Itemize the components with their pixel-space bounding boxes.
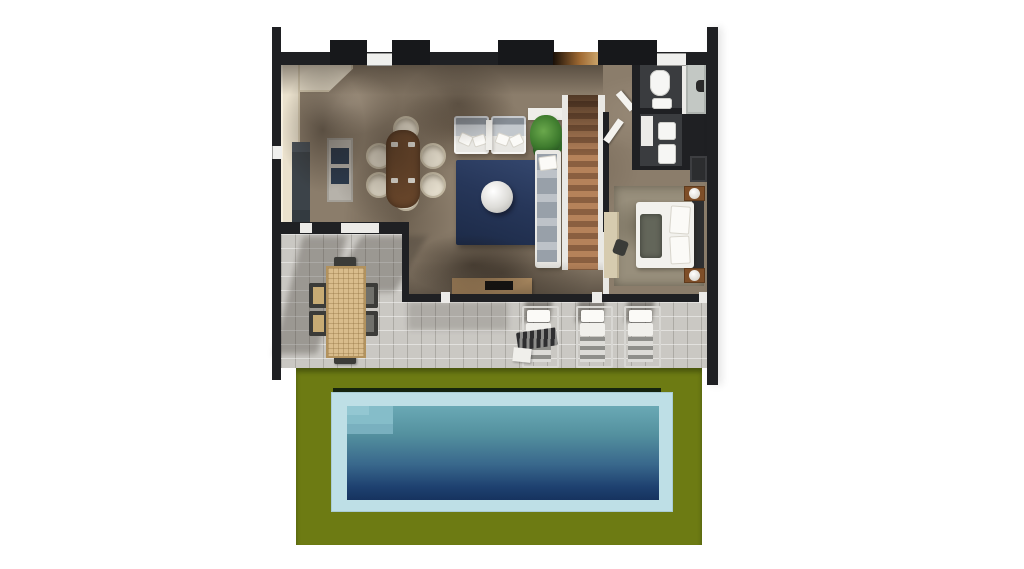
dining-chair [420, 143, 446, 169]
chair-seat [313, 315, 324, 332]
pool-step [347, 406, 369, 415]
chaise-sofa [535, 150, 561, 268]
wall-left [272, 27, 281, 380]
table-setting [391, 142, 398, 147]
bed-pillow [669, 205, 691, 234]
white-towel [512, 347, 531, 363]
bathroom-sink [652, 98, 672, 109]
lounger-cushion [628, 323, 653, 336]
wall-top-pier [498, 40, 554, 65]
lounger-cushion [580, 323, 605, 336]
island-sink-1 [331, 148, 349, 164]
glass-jamb [441, 292, 450, 303]
bed-pillow [669, 235, 690, 264]
side-table [486, 120, 492, 150]
bathroom-2-sink [658, 122, 676, 140]
tv [485, 281, 513, 290]
staircase [568, 95, 598, 270]
bedside-lamp [689, 270, 700, 281]
chaise-pillow [538, 155, 558, 171]
wall-top-pier [330, 40, 367, 65]
dining-chair [420, 172, 446, 198]
chair-seat [313, 287, 324, 304]
fridge [292, 142, 310, 222]
window-top-2 [657, 53, 686, 66]
shower-tray [658, 144, 676, 164]
window-left [272, 146, 282, 159]
sofa-pillow [457, 132, 473, 147]
lounger-pillow [629, 310, 652, 322]
potted-plant [530, 115, 562, 155]
wall-pier-white [300, 223, 312, 233]
sofa-left [454, 116, 489, 154]
wall-top-pier [392, 40, 430, 65]
wardrobe [690, 156, 707, 182]
sofa-pillow [508, 133, 525, 149]
toilet [650, 70, 670, 96]
pool-step [347, 424, 393, 434]
bathroom-2-wall [641, 116, 653, 146]
table-setting [408, 142, 415, 147]
window-top-1 [367, 53, 392, 66]
bedside-lamp [689, 188, 700, 199]
door-gap-kitchen [341, 223, 379, 233]
lounger-slats [628, 337, 653, 362]
lounger-pillow [527, 310, 550, 322]
sun-lounger [576, 306, 613, 368]
glass-jamb [699, 292, 707, 303]
coffee-table [481, 181, 513, 213]
sun-lounger [624, 306, 661, 368]
wall-right [707, 27, 718, 385]
sofa-right [491, 116, 526, 154]
glass-jamb [592, 292, 602, 303]
island-sink-2 [331, 168, 349, 184]
stairwell-ceiling [553, 52, 598, 65]
shower-fitting [696, 80, 704, 92]
outdoor-dining-table [326, 266, 366, 358]
wall-living-left [402, 222, 409, 302]
pool-water [347, 406, 659, 500]
lounger-slats [580, 337, 605, 362]
table-setting [391, 178, 398, 183]
lounger-pillow [581, 310, 604, 322]
floor-plan-canvas [0, 0, 1024, 569]
wall-top-pier [598, 40, 657, 65]
bed-throw [640, 214, 662, 258]
table-setting [408, 178, 415, 183]
